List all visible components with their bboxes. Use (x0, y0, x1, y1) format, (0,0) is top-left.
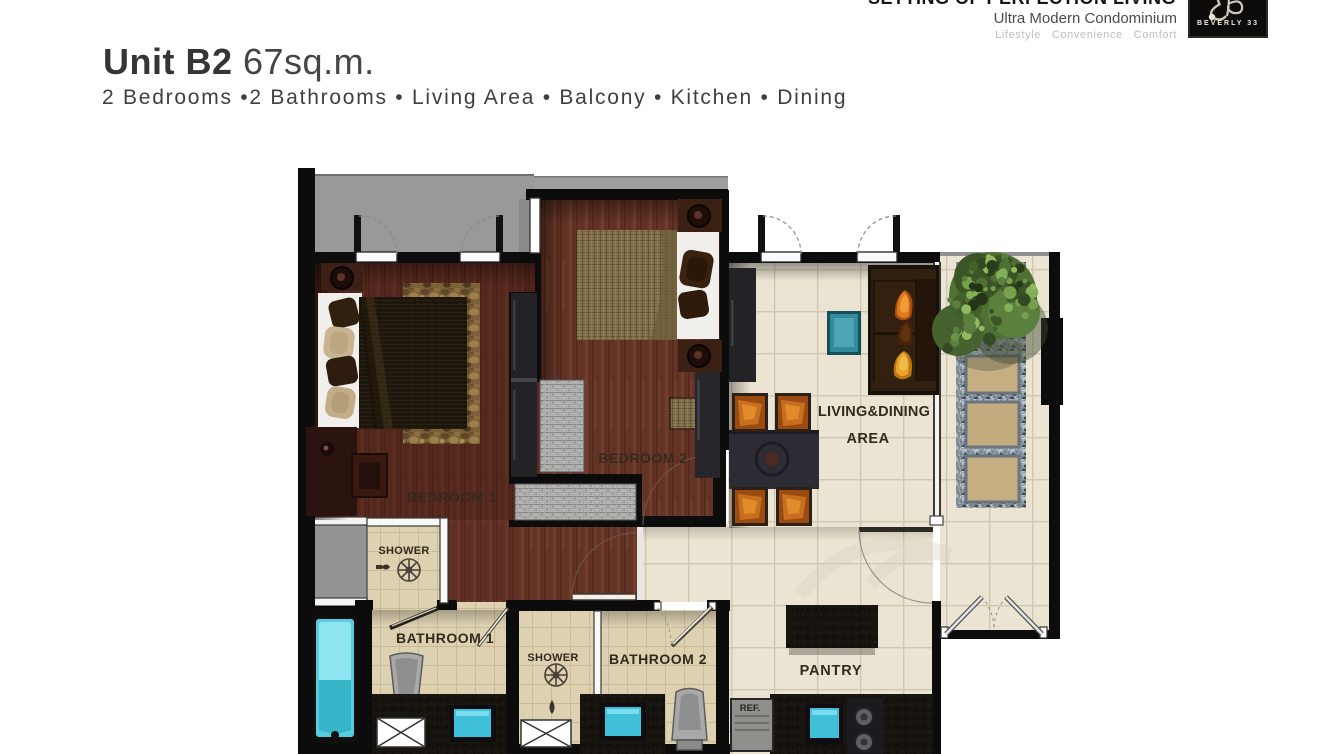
svg-text:SHOWER: SHOWER (527, 652, 578, 664)
svg-text:BEDROOM 1: BEDROOM 1 (407, 489, 496, 505)
svg-text:AREA: AREA (846, 431, 889, 447)
svg-text:LIVING&DINING: LIVING&DINING (818, 404, 930, 420)
svg-text:REF.: REF. (740, 703, 761, 714)
svg-text:SHOWER: SHOWER (378, 545, 429, 557)
svg-text:BATHROOM 1: BATHROOM 1 (396, 630, 494, 646)
svg-text:PANTRY: PANTRY (800, 663, 863, 679)
svg-text:BATHROOM 2: BATHROOM 2 (609, 651, 707, 667)
svg-text:BEDROOM 2: BEDROOM 2 (598, 450, 687, 466)
